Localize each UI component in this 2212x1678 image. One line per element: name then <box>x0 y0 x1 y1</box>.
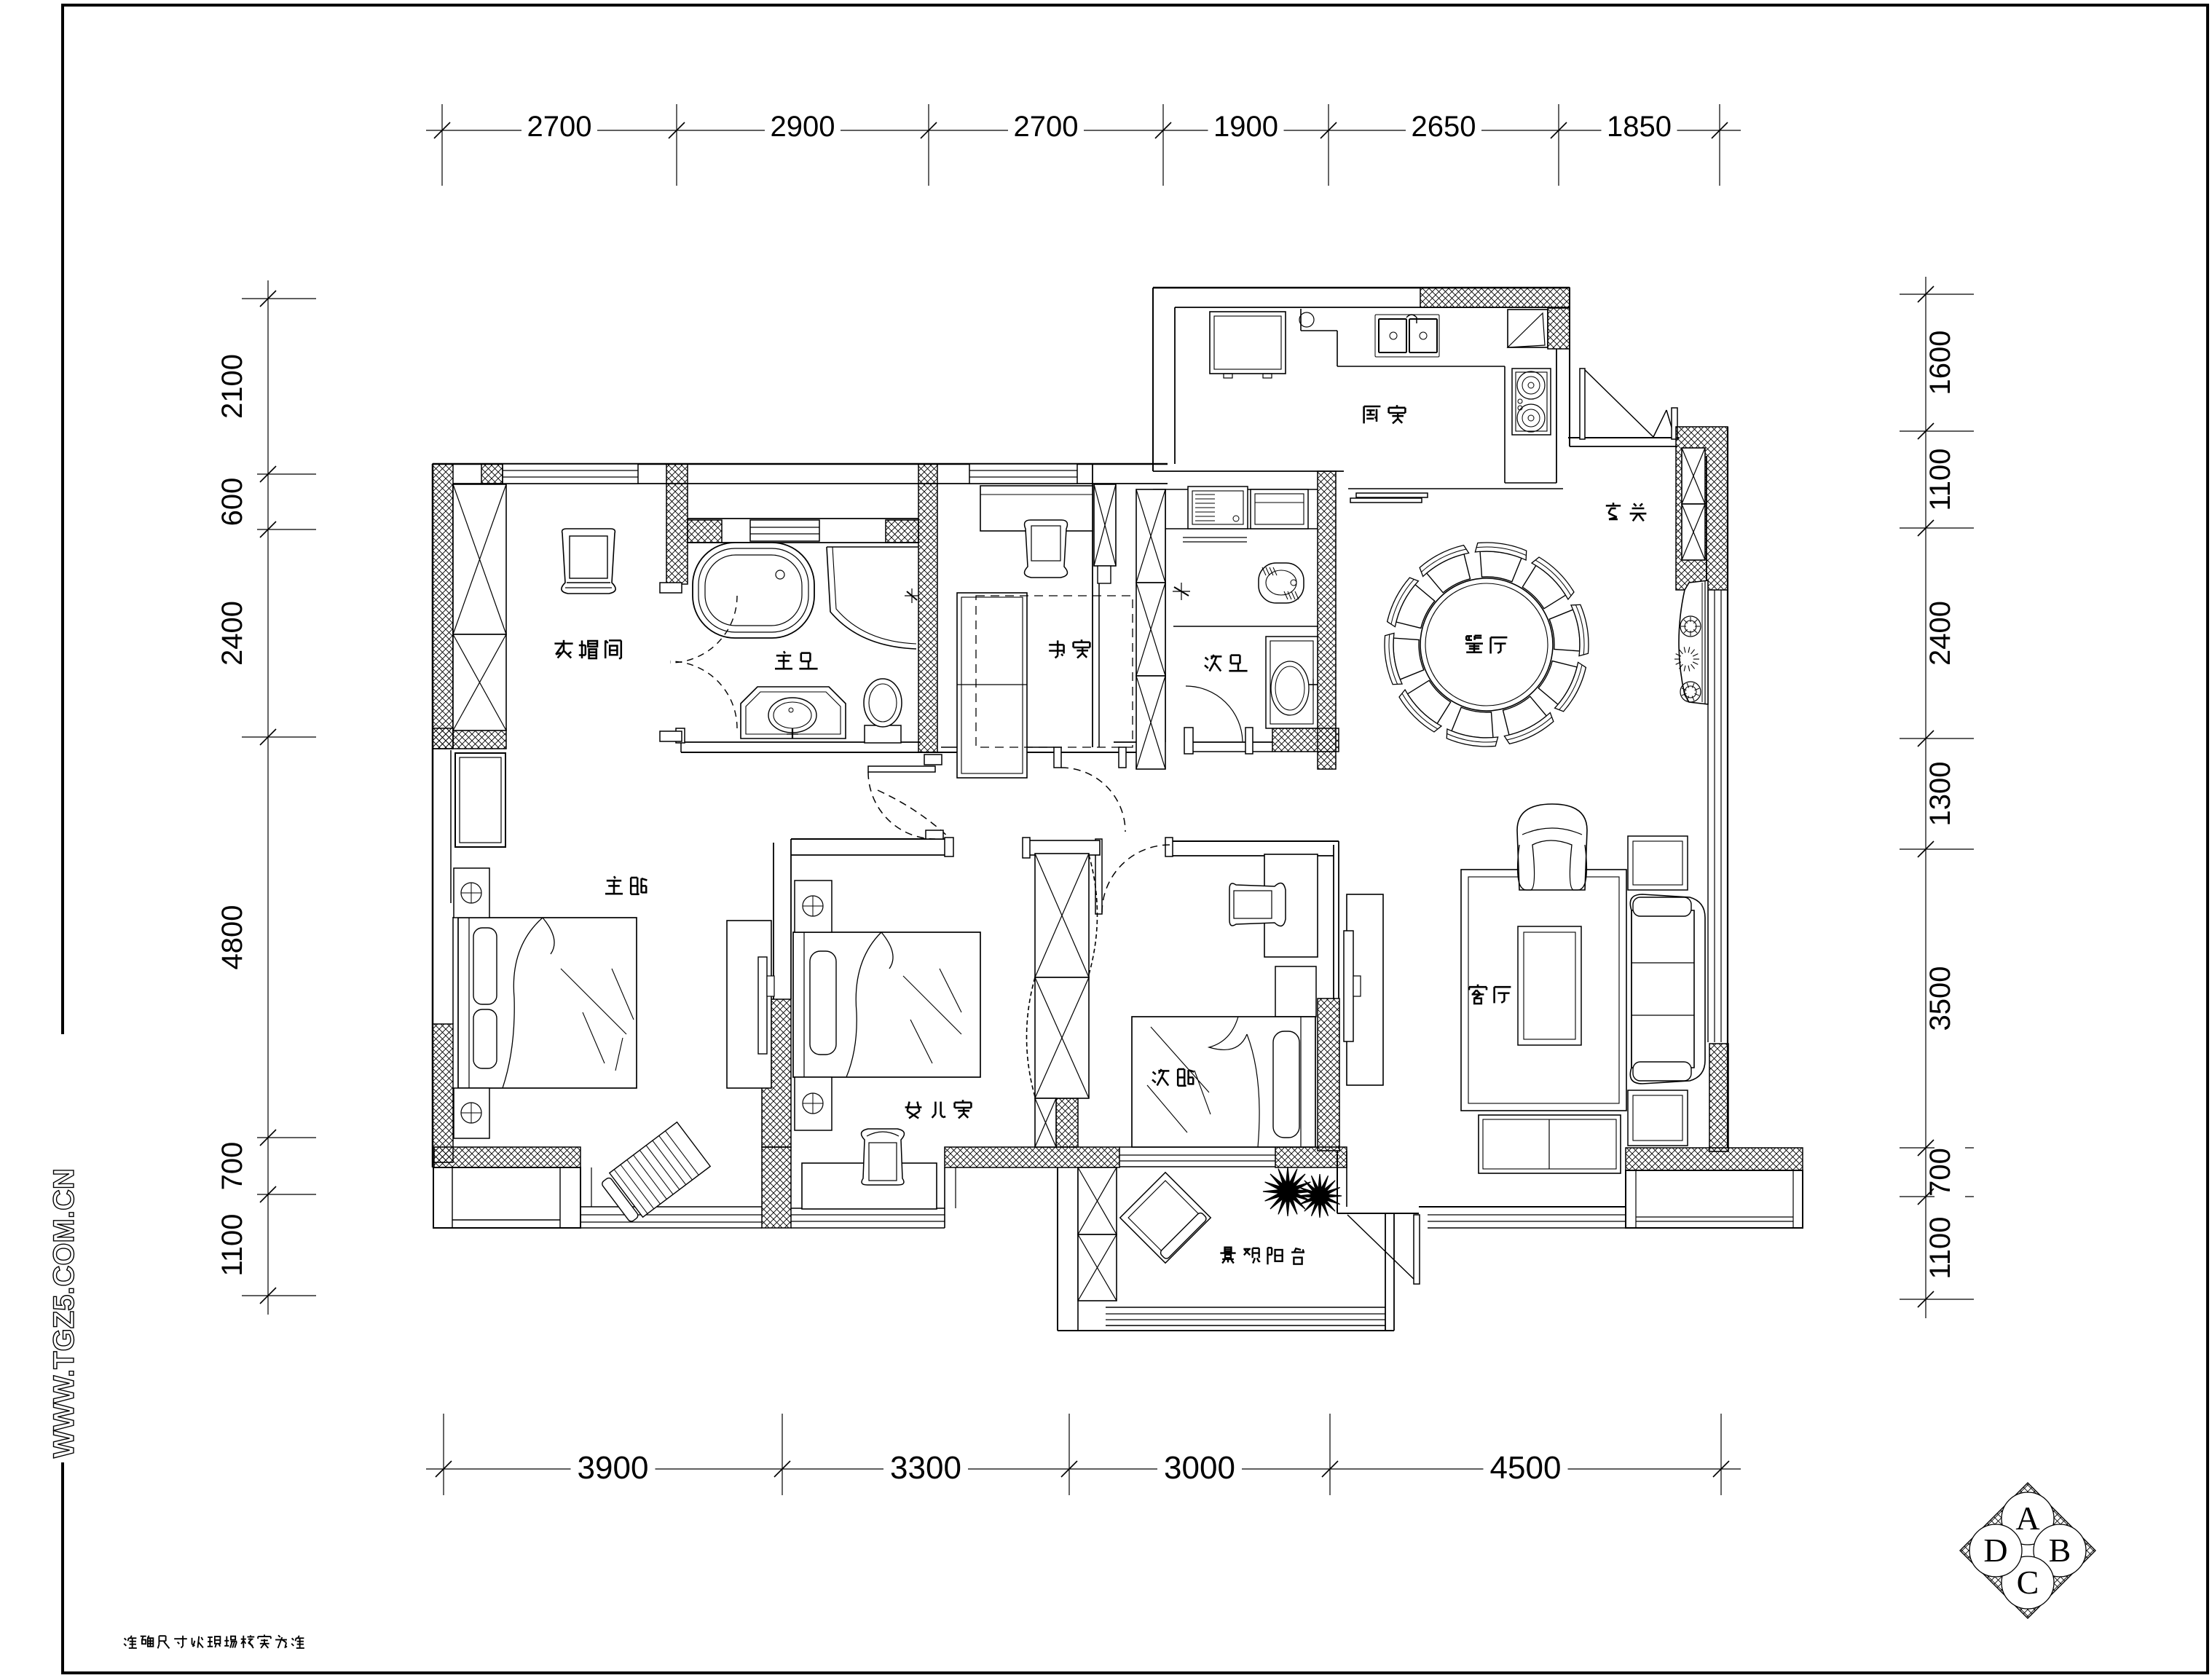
svg-text:700: 700 <box>1924 1148 1956 1197</box>
svg-text:D: D <box>1983 1532 2007 1569</box>
svg-text:600: 600 <box>216 478 248 527</box>
svg-text:2650: 2650 <box>1412 111 1476 143</box>
svg-text:1850: 1850 <box>1607 111 1672 143</box>
svg-text:3000: 3000 <box>1164 1450 1235 1486</box>
svg-text:A: A <box>2015 1500 2039 1537</box>
svg-text:B: B <box>2049 1532 2071 1569</box>
svg-text:2900: 2900 <box>771 111 835 143</box>
svg-text:700: 700 <box>216 1142 248 1191</box>
svg-text:1100: 1100 <box>1924 448 1956 511</box>
svg-text:2700: 2700 <box>1014 111 1079 143</box>
svg-text:1300: 1300 <box>1924 762 1956 827</box>
svg-text:2400: 2400 <box>1924 601 1956 666</box>
svg-text:4800: 4800 <box>216 905 248 970</box>
svg-text:3300: 3300 <box>890 1450 961 1486</box>
svg-text:2700: 2700 <box>527 111 592 143</box>
svg-text:1900: 1900 <box>1213 111 1278 143</box>
svg-text:C: C <box>2017 1564 2039 1601</box>
svg-text:3900: 3900 <box>578 1450 649 1486</box>
svg-text:2100: 2100 <box>216 354 248 419</box>
svg-text:2400: 2400 <box>216 601 248 666</box>
svg-text:1100: 1100 <box>1924 1216 1956 1279</box>
svg-text:1100: 1100 <box>216 1213 248 1276</box>
svg-text:1600: 1600 <box>1924 331 1956 395</box>
svg-text:WWW.TGZ5.COM.CN: WWW.TGZ5.COM.CN <box>48 1168 80 1458</box>
svg-text:3500: 3500 <box>1924 966 1956 1031</box>
svg-text:4500: 4500 <box>1490 1450 1562 1486</box>
